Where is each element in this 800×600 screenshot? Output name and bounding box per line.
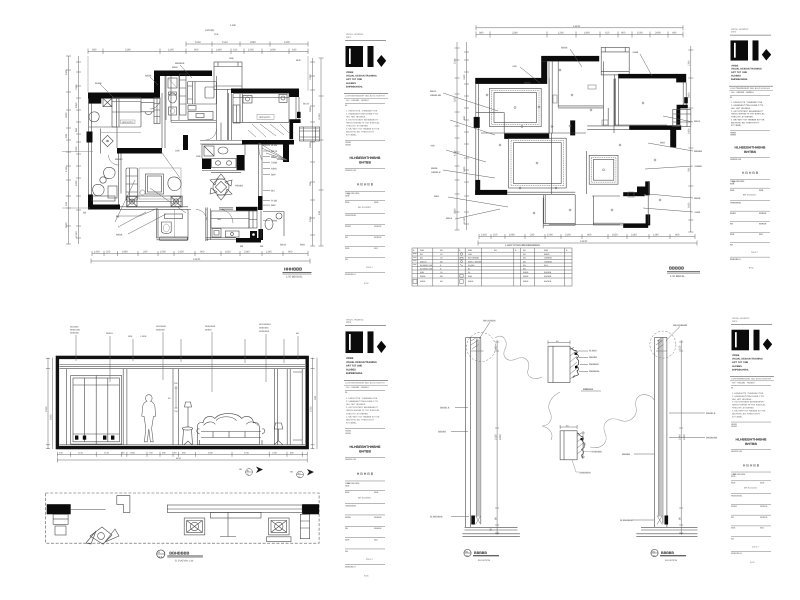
svg-text:2340: 2340 bbox=[454, 58, 457, 64]
svg-text:2150: 2150 bbox=[494, 434, 497, 440]
svg-text:150: 150 bbox=[494, 345, 497, 350]
svg-text:BBTB: BBTB bbox=[271, 150, 278, 153]
svg-text:BBHBBBB: BBHBBBB bbox=[169, 550, 189, 555]
svg-text:BBBBBBL: BBBBBBL bbox=[589, 370, 601, 373]
svg-text:2450: 2450 bbox=[309, 216, 312, 222]
svg-text:BB: BB bbox=[440, 249, 443, 252]
svg-text:2050: 2050 bbox=[75, 102, 78, 108]
svg-text:80: 80 bbox=[168, 397, 171, 400]
svg-text:400: 400 bbox=[318, 210, 321, 215]
svg-text:1760: 1760 bbox=[688, 60, 691, 66]
svg-text:BB: BB bbox=[466, 554, 469, 557]
svg-text:HHHBBB: HHHBBB bbox=[284, 267, 302, 272]
svg-text:BB 1BBBBB: BB 1BBBBB bbox=[468, 257, 480, 260]
svg-text:1820: 1820 bbox=[225, 251, 231, 254]
svg-text:640: 640 bbox=[672, 32, 677, 35]
svg-text:+BBBB: +BBBB bbox=[694, 165, 702, 168]
svg-text:2140: 2140 bbox=[678, 434, 681, 440]
svg-text:1240: 1240 bbox=[653, 234, 659, 237]
svg-text:BB: BB bbox=[420, 253, 423, 256]
svg-text:HBBBLBB: HBBBLBB bbox=[430, 94, 441, 97]
svg-text:BB: BB bbox=[523, 253, 526, 256]
svg-text:760: 760 bbox=[174, 410, 178, 413]
svg-text:B: B bbox=[515, 249, 517, 252]
svg-text:760: 760 bbox=[149, 451, 153, 454]
svg-text:1500: 1500 bbox=[463, 74, 466, 80]
svg-text:1200: 1200 bbox=[284, 41, 290, 44]
svg-text:1260: 1260 bbox=[558, 32, 564, 35]
svg-text:2600: 2600 bbox=[454, 208, 457, 214]
svg-text:620: 620 bbox=[233, 49, 238, 52]
svg-text:1980: 1980 bbox=[122, 251, 128, 254]
svg-text:150: 150 bbox=[678, 345, 681, 350]
svg-text:2140: 2140 bbox=[244, 251, 250, 254]
svg-text:13230: 13230 bbox=[193, 258, 201, 261]
svg-text:+BBB: +BBB bbox=[694, 211, 701, 214]
svg-text:2100: 2100 bbox=[565, 234, 571, 237]
svg-text:1560: 1560 bbox=[637, 32, 643, 35]
svg-text:BBB: BBB bbox=[468, 249, 473, 252]
svg-text:BB: BB bbox=[523, 249, 526, 252]
svg-text:900: 900 bbox=[194, 49, 199, 52]
svg-text:1560: 1560 bbox=[248, 49, 254, 52]
svg-text:2350(B): 2350(B) bbox=[205, 29, 214, 32]
svg-text:BBBBL: BBBBL bbox=[205, 329, 213, 332]
svg-text:960: 960 bbox=[200, 251, 205, 254]
svg-text:360: 360 bbox=[584, 442, 587, 446]
svg-text:BBBBBB: BBBBBB bbox=[156, 329, 165, 332]
svg-text:BLB: BLB bbox=[544, 264, 548, 267]
svg-text:BBBB: BBBB bbox=[523, 280, 529, 283]
svg-text:BBBBLB: BBBBLB bbox=[440, 407, 450, 410]
svg-text:1450: 1450 bbox=[481, 234, 487, 237]
svg-text:1820: 1820 bbox=[612, 234, 618, 237]
svg-text:BB: BB bbox=[218, 218, 222, 221]
svg-text:2600: 2600 bbox=[65, 222, 68, 228]
svg-text:BLBB: BLBB bbox=[271, 144, 278, 147]
svg-text:290: 290 bbox=[143, 251, 148, 254]
svg-text:2690: 2690 bbox=[270, 49, 276, 52]
svg-text:BBBB: BBBB bbox=[468, 280, 474, 283]
svg-text:1980: 1980 bbox=[509, 234, 515, 237]
svg-text:960: 960 bbox=[675, 234, 680, 237]
svg-text:BBBBBBL: BBBBBBL bbox=[259, 327, 270, 330]
svg-text:BLBBBBB: BLBBBBB bbox=[156, 325, 167, 328]
svg-text:+BB: +BB bbox=[430, 145, 435, 148]
svg-text:BBBL LBBBBB: BBBL LBBBBB bbox=[468, 260, 482, 263]
svg-text:TBBB: TBBB bbox=[271, 161, 278, 164]
svg-text:BBBBB: BBBBB bbox=[694, 150, 702, 153]
svg-text:2450: 2450 bbox=[50, 414, 53, 420]
svg-text:1.BB: 1.BB bbox=[230, 24, 236, 27]
svg-text:B: B bbox=[459, 249, 461, 252]
svg-text:B: B bbox=[118, 226, 120, 229]
svg-text:ELEVATION: ELEVATION bbox=[478, 559, 490, 562]
svg-text:960: 960 bbox=[587, 234, 592, 237]
svg-text:90: 90 bbox=[174, 451, 177, 454]
svg-text:1060: 1060 bbox=[195, 41, 201, 44]
svg-text:BBBBB: BBBBB bbox=[589, 356, 597, 359]
svg-text:640: 640 bbox=[292, 49, 297, 52]
svg-text:1:50 BBB BL: 1:50 BBB BL bbox=[670, 275, 685, 278]
svg-text:11230: 11230 bbox=[75, 231, 78, 238]
svg-text:BB: BB bbox=[440, 275, 443, 278]
svg-text:BbLB: BbLB bbox=[303, 103, 309, 106]
svg-text:4150: 4150 bbox=[65, 166, 68, 172]
svg-text:BBBBBBB: BBBBBBB bbox=[706, 437, 718, 440]
svg-text:1800x2000: 1800x2000 bbox=[259, 116, 272, 119]
svg-text:BBBB: BBBB bbox=[420, 275, 426, 278]
svg-text:BBB: BBB bbox=[420, 271, 425, 274]
svg-text:2450: 2450 bbox=[683, 434, 686, 440]
svg-text:2140: 2140 bbox=[78, 451, 84, 454]
svg-text:13230: 13230 bbox=[580, 240, 588, 243]
svg-text:BLBBBB 1BB: BLBBBB 1BB bbox=[420, 264, 433, 267]
svg-text:BBBB: BBBB bbox=[145, 75, 152, 78]
svg-text:2400: 2400 bbox=[463, 166, 466, 172]
svg-text:BLBBBBBB: BLBBBBBB bbox=[620, 519, 633, 522]
svg-text:11230: 11230 bbox=[318, 113, 321, 120]
svg-text:2850: 2850 bbox=[688, 92, 691, 98]
svg-text:980: 980 bbox=[290, 451, 294, 454]
svg-text:TBBB: TBBB bbox=[271, 220, 278, 223]
svg-text:1500: 1500 bbox=[75, 84, 78, 90]
svg-text:250: 250 bbox=[106, 251, 111, 254]
svg-text:BBBL: BBBL bbox=[172, 66, 179, 69]
svg-text:1440: 1440 bbox=[272, 451, 278, 454]
svg-text:860: 860 bbox=[75, 127, 78, 132]
svg-text:980: 980 bbox=[479, 32, 484, 35]
svg-text:BB/BBB: BB/BBB bbox=[544, 280, 552, 283]
svg-text:BBBBB: BBBBB bbox=[474, 551, 487, 555]
svg-text:1-BBB: 1-BBB bbox=[140, 335, 147, 338]
svg-text:BBBBB: BBBBB bbox=[438, 431, 446, 434]
svg-text:3200: 3200 bbox=[208, 451, 214, 454]
svg-text:BB: BB bbox=[239, 468, 242, 471]
svg-text:BBBBBBB: BBBBBBB bbox=[579, 472, 591, 475]
svg-text:BB: BB bbox=[83, 212, 87, 215]
svg-text:BLBBB: BLBBB bbox=[589, 350, 597, 353]
svg-text:BBBB: BBBB bbox=[544, 253, 550, 256]
svg-text:BLBBBBBB: BLBBBBBB bbox=[430, 516, 443, 519]
svg-text:BBBB: BBBB bbox=[420, 280, 426, 283]
svg-text:780: 780 bbox=[309, 181, 312, 186]
svg-text:440: 440 bbox=[59, 451, 63, 454]
svg-text:BB: BB bbox=[260, 245, 264, 248]
svg-text:BBBB: BBBB bbox=[116, 234, 123, 237]
svg-text:900: 900 bbox=[65, 133, 68, 138]
svg-text:BBB: BBB bbox=[300, 244, 305, 247]
svg-text:2750: 2750 bbox=[310, 406, 313, 412]
svg-text:2240: 2240 bbox=[244, 451, 250, 454]
svg-text:50: 50 bbox=[490, 528, 493, 531]
svg-text:BBB: BBB bbox=[420, 249, 425, 252]
svg-text:PBBBB: PBBBB bbox=[235, 185, 243, 188]
svg-text:BBLB: BBLB bbox=[430, 90, 437, 93]
svg-text:1B: 1B bbox=[440, 253, 443, 256]
svg-text:BB: BB bbox=[653, 554, 656, 557]
svg-text:2400: 2400 bbox=[75, 180, 78, 186]
svg-text:BBBLB: BBBLB bbox=[420, 260, 427, 263]
svg-text:BBBB: BBBB bbox=[694, 197, 701, 200]
svg-text:BBBBBBB: BBBBBBB bbox=[205, 325, 216, 328]
svg-text:690: 690 bbox=[162, 451, 166, 454]
svg-text:1460: 1460 bbox=[216, 49, 222, 52]
svg-text:BBB: BBB bbox=[544, 249, 549, 252]
svg-text:BLBBB: BLBBB bbox=[468, 264, 475, 267]
svg-text:BBBBLBB: BBBBLBB bbox=[70, 329, 81, 332]
svg-text:BBBB: BBBB bbox=[524, 82, 531, 85]
svg-text:13230: 13230 bbox=[573, 25, 581, 28]
svg-text:250: 250 bbox=[493, 234, 498, 237]
svg-text:BB: BB bbox=[240, 245, 244, 248]
svg-text:960: 960 bbox=[288, 251, 293, 254]
svg-text:2340: 2340 bbox=[65, 69, 68, 75]
svg-text:BBLL: BBLL bbox=[271, 156, 278, 159]
svg-text:BB: BB bbox=[296, 332, 299, 335]
svg-text:4BB: 4BB bbox=[229, 57, 234, 60]
svg-text:BB: BB bbox=[494, 249, 497, 252]
svg-text:+BBB: +BBB bbox=[632, 51, 639, 54]
svg-text:1590: 1590 bbox=[160, 251, 166, 254]
svg-text:HBBBLB: HBBBLB bbox=[431, 171, 441, 174]
svg-text:BBBBLB: BBBBLB bbox=[706, 412, 716, 415]
svg-text:BBBB1: BBBB1 bbox=[115, 158, 123, 161]
svg-text:2140: 2140 bbox=[104, 451, 110, 454]
svg-text:BBB: BBB bbox=[468, 275, 473, 278]
svg-text:BbB: BbB bbox=[296, 59, 301, 62]
svg-text:BBB: BBB bbox=[434, 195, 439, 198]
svg-text:290: 290 bbox=[530, 234, 535, 237]
svg-text:ELEVATION: ELEVATION bbox=[665, 559, 677, 562]
svg-text:BBP: BBP bbox=[271, 204, 276, 207]
svg-text:1200: 1200 bbox=[75, 146, 78, 152]
svg-text:ELEVATION 1:30: ELEVATION 1:30 bbox=[175, 559, 194, 562]
svg-text:+BB: +BB bbox=[512, 65, 517, 68]
svg-text:2690: 2690 bbox=[655, 32, 661, 35]
svg-text:620: 620 bbox=[605, 32, 610, 35]
svg-text:A: A bbox=[158, 551, 160, 554]
svg-text:BBBBB: BBBBB bbox=[669, 266, 684, 271]
svg-text:3200: 3200 bbox=[65, 112, 68, 118]
svg-text:B-B: B-B bbox=[159, 556, 163, 559]
svg-text:BB1B: BB1B bbox=[280, 244, 287, 247]
svg-text:BB/BBB: BB/BBB bbox=[544, 275, 552, 278]
svg-text:2100: 2100 bbox=[178, 251, 184, 254]
svg-text:BBBB8B: BBBB8B bbox=[175, 62, 185, 65]
svg-text:860: 860 bbox=[463, 115, 466, 120]
svg-text:BBB: BBB bbox=[128, 335, 133, 338]
svg-text:BBBBB: BBBBB bbox=[622, 453, 630, 456]
svg-text:980: 980 bbox=[92, 49, 97, 52]
svg-text:BBLB: BBLB bbox=[446, 217, 453, 220]
svg-text:BBLBBBBB: BBLBBBBB bbox=[483, 320, 496, 323]
svg-text:900: 900 bbox=[621, 32, 626, 35]
svg-text:1BBBBB: 1BBBBB bbox=[544, 257, 552, 260]
svg-text:1660: 1660 bbox=[130, 451, 136, 454]
svg-text:BBLBBB: BBLBBB bbox=[70, 326, 79, 329]
svg-text:2450: 2450 bbox=[688, 202, 691, 208]
svg-text:11230: 11230 bbox=[463, 217, 466, 224]
svg-text:1800x2000: 1800x2000 bbox=[122, 121, 135, 124]
svg-text:850: 850 bbox=[182, 451, 186, 454]
svg-text:B: B bbox=[566, 249, 568, 252]
svg-text:2140: 2140 bbox=[631, 234, 637, 237]
svg-text:350: 350 bbox=[174, 382, 178, 385]
svg-text:2980: 2980 bbox=[250, 41, 256, 44]
svg-text:1590: 1590 bbox=[547, 234, 553, 237]
svg-text:BBBBLB: BBBBLB bbox=[583, 388, 593, 391]
svg-text:2280: 2280 bbox=[125, 49, 131, 52]
svg-text:B: B bbox=[413, 249, 415, 252]
svg-text:1460: 1460 bbox=[584, 32, 590, 35]
svg-text:8150: 8150 bbox=[176, 457, 182, 460]
svg-text:450: 450 bbox=[65, 201, 68, 206]
svg-text:300: 300 bbox=[314, 395, 317, 400]
svg-text:BBBBBBL: BBBBBBL bbox=[592, 451, 604, 454]
svg-text:BBBB: BBBB bbox=[431, 167, 438, 170]
svg-text:BB.BBBBBL: BB.BBBBBL bbox=[259, 323, 272, 326]
svg-text:BB: BB bbox=[440, 280, 443, 283]
svg-text:1BBBBB: 1BBBBB bbox=[544, 260, 552, 263]
svg-text:H.B: H.B bbox=[214, 33, 219, 36]
svg-text:1450: 1450 bbox=[94, 251, 100, 254]
svg-text:BB/BBB: BB/BBB bbox=[544, 271, 552, 274]
svg-text:BBBB: BBBB bbox=[523, 275, 529, 278]
svg-text:2450: 2450 bbox=[499, 434, 502, 440]
svg-text:BBBBBB: BBBBBB bbox=[70, 332, 79, 335]
svg-text:1:50 BBHB BL: 1:50 BBHB BL bbox=[286, 276, 303, 279]
svg-text:L-BBP BTBBHBB/BBBBBBBB: L-BBP BTBBHBB/BBBBBBBB bbox=[505, 244, 540, 247]
svg-text:BBBBBB: BBBBBB bbox=[589, 363, 599, 366]
svg-text:BBBB: BBBB bbox=[523, 271, 529, 274]
svg-text:BBBBBBB: BBBBBBB bbox=[259, 330, 270, 333]
svg-text:2750: 2750 bbox=[45, 406, 48, 412]
svg-text:BBBBL: BBBBL bbox=[106, 332, 114, 335]
svg-text:LBB: LBB bbox=[468, 253, 472, 256]
svg-text:90: 90 bbox=[122, 451, 125, 454]
svg-text:BB: BB bbox=[290, 471, 293, 474]
svg-text:2850: 2850 bbox=[309, 106, 312, 112]
svg-text:BBLBBBBBB: BBLBBBBBB bbox=[673, 324, 687, 327]
svg-text:BbL: BbL bbox=[271, 190, 276, 193]
svg-text:BBLB: BBLB bbox=[694, 120, 701, 123]
svg-text:2280: 2280 bbox=[512, 32, 518, 35]
svg-text:1BB: 1BB bbox=[175, 150, 180, 153]
svg-text:1760: 1760 bbox=[309, 74, 312, 80]
svg-text:BBP: BBP bbox=[271, 174, 276, 177]
svg-text:PLBB: PLBB bbox=[271, 200, 278, 203]
svg-text:BBB: BBB bbox=[660, 142, 665, 145]
svg-text:BLBBBB 1BB: BLBBBB 1BB bbox=[420, 267, 433, 270]
svg-text:780: 780 bbox=[688, 167, 691, 172]
svg-text:80: 80 bbox=[494, 517, 497, 520]
svg-text:1260: 1260 bbox=[168, 49, 174, 52]
svg-text:1510: 1510 bbox=[222, 41, 228, 44]
svg-text:BBBB: BBBB bbox=[561, 47, 568, 50]
svg-text:3300: 3300 bbox=[688, 128, 691, 134]
svg-text:BBBBB: BBBBB bbox=[661, 551, 674, 555]
svg-text:3300: 3300 bbox=[309, 142, 312, 148]
svg-text:HBBL: HBBL bbox=[271, 167, 278, 170]
svg-text:1240: 1240 bbox=[266, 251, 272, 254]
svg-text:4BB: 4BB bbox=[196, 155, 201, 158]
